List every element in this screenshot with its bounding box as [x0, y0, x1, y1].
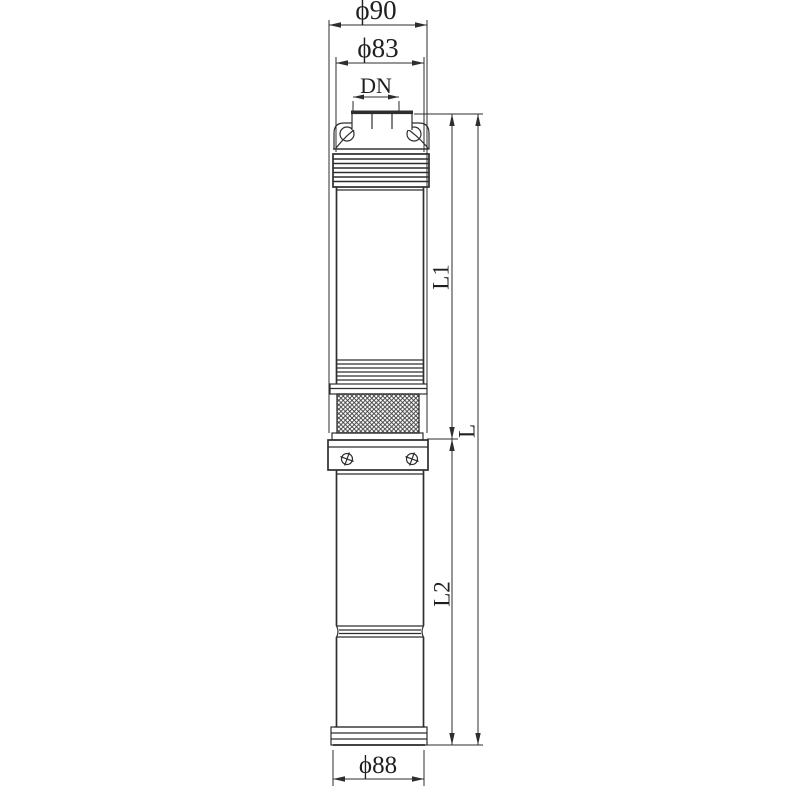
ribbed-top-cap [333, 149, 429, 187]
label-l2: L2 [430, 581, 455, 607]
connector-top-edge [351, 111, 413, 115]
label-l1: L1 [429, 264, 454, 290]
pump-section-body [330, 187, 427, 394]
label-l: L [455, 424, 480, 438]
label-phi88: ϕ88 [359, 752, 397, 779]
screw-right [403, 450, 421, 468]
label-phi83: ϕ83 [357, 33, 398, 63]
label-phi90: ϕ90 [355, 0, 396, 25]
coupling-band [328, 433, 428, 470]
dim-l: L [455, 114, 481, 745]
label-dn: DN [360, 73, 392, 98]
motor-section-lower [337, 637, 424, 727]
motor-section-upper [337, 470, 424, 626]
dim-dn: DN [353, 73, 399, 111]
drawing-canvas: ϕ90 ϕ83 DN L1 [0, 0, 800, 800]
pump-outline-drawing: ϕ90 ϕ83 DN L1 [0, 0, 800, 800]
pump-figure [328, 111, 429, 746]
dim-l1: L1 [429, 114, 455, 439]
screw-left [338, 450, 356, 468]
dim-phi88: ϕ88 [333, 750, 424, 786]
discharge-connector [351, 111, 413, 131]
dim-l2: L2 [430, 439, 455, 745]
motor-neck-groove [337, 626, 424, 637]
bottom-cap [331, 727, 427, 745]
strainer-mesh [337, 394, 419, 433]
